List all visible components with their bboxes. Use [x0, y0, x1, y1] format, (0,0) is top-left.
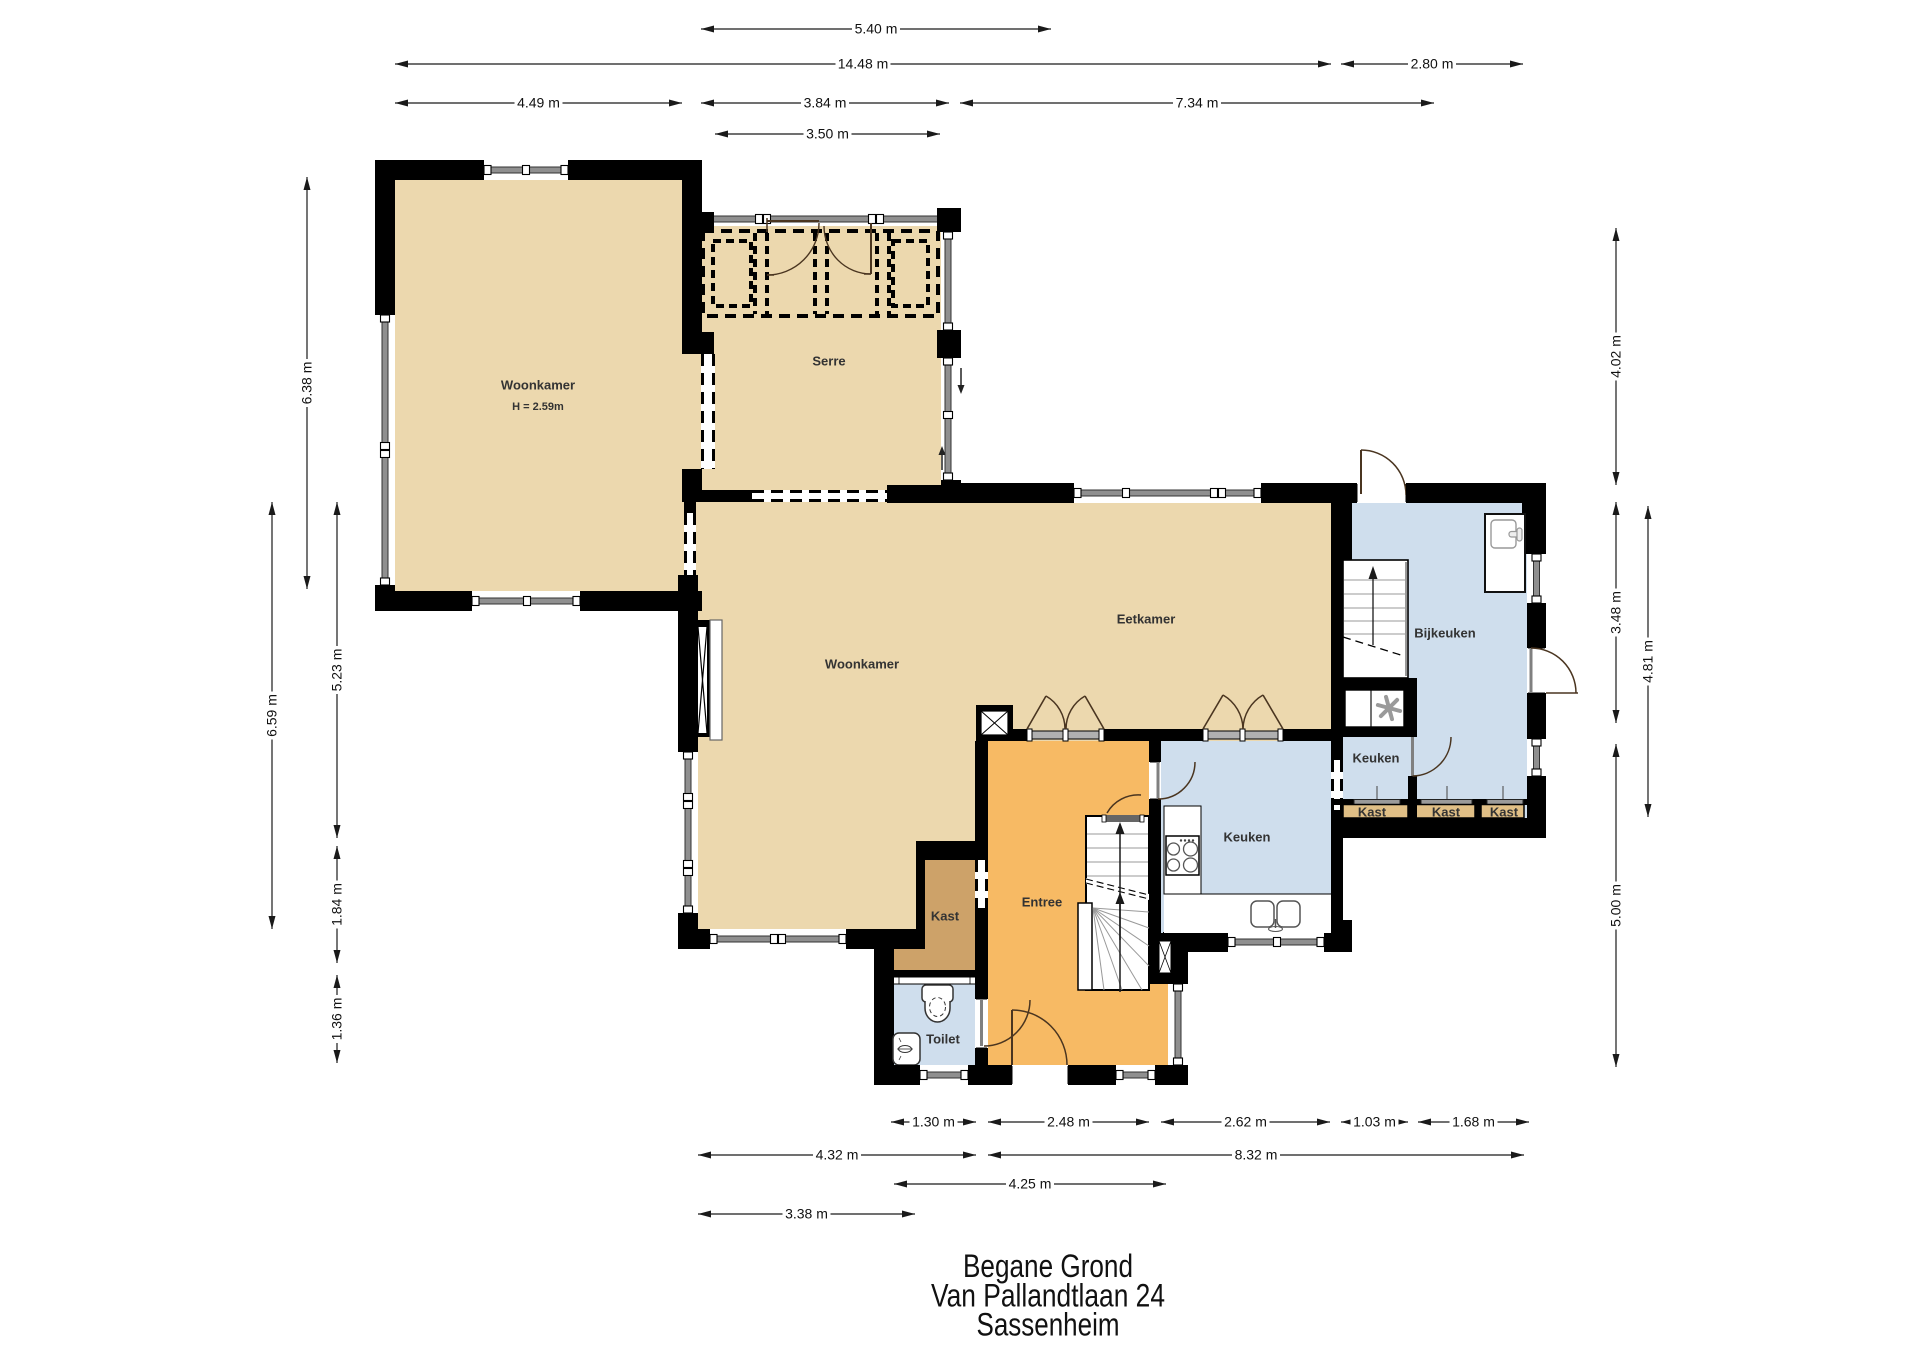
svg-text:4.81 m: 4.81 m	[1640, 640, 1656, 683]
svg-text:1.68 m: 1.68 m	[1452, 1114, 1495, 1130]
svg-text:5.23 m: 5.23 m	[329, 649, 345, 692]
svg-text:2.62 m: 2.62 m	[1224, 1114, 1267, 1130]
svg-text:3.38 m: 3.38 m	[785, 1206, 828, 1222]
svg-text:Keuken: Keuken	[1353, 751, 1400, 766]
svg-text:Sassenheim: Sassenheim	[977, 1307, 1120, 1343]
svg-text:Woonkamer: Woonkamer	[501, 378, 575, 393]
svg-text:Toilet: Toilet	[926, 1032, 960, 1047]
svg-text:2.48 m: 2.48 m	[1047, 1114, 1090, 1130]
svg-text:3.84 m: 3.84 m	[804, 95, 847, 111]
svg-text:Serre: Serre	[812, 354, 845, 369]
svg-text:4.49 m: 4.49 m	[517, 95, 560, 111]
svg-text:14.48 m: 14.48 m	[838, 56, 889, 72]
svg-text:6.59 m: 6.59 m	[264, 694, 280, 737]
svg-text:1.36 m: 1.36 m	[329, 998, 345, 1041]
svg-text:4.25 m: 4.25 m	[1009, 1176, 1052, 1192]
svg-text:Kast: Kast	[931, 909, 960, 924]
svg-text:4.02 m: 4.02 m	[1608, 335, 1624, 378]
svg-text:8.32 m: 8.32 m	[1235, 1147, 1278, 1163]
svg-text:1.84 m: 1.84 m	[329, 883, 345, 926]
svg-text:Kast: Kast	[1358, 805, 1387, 820]
svg-text:H = 2.59m: H = 2.59m	[512, 401, 564, 413]
svg-text:Woonkamer: Woonkamer	[825, 657, 899, 672]
svg-text:3.48 m: 3.48 m	[1608, 591, 1624, 634]
svg-text:Eetkamer: Eetkamer	[1117, 612, 1176, 627]
svg-text:1.30 m: 1.30 m	[912, 1114, 955, 1130]
svg-text:Entree: Entree	[1022, 895, 1062, 910]
svg-text:1.03 m: 1.03 m	[1353, 1114, 1396, 1130]
svg-text:6.38 m: 6.38 m	[299, 362, 315, 405]
svg-text:4.32 m: 4.32 m	[816, 1147, 859, 1163]
svg-text:7.34 m: 7.34 m	[1176, 95, 1219, 111]
svg-text:Kast: Kast	[1432, 805, 1461, 820]
svg-text:Kast: Kast	[1490, 805, 1519, 820]
svg-text:Bijkeuken: Bijkeuken	[1414, 626, 1475, 641]
svg-text:2.80 m: 2.80 m	[1411, 56, 1454, 72]
svg-text:Keuken: Keuken	[1224, 830, 1271, 845]
svg-text:3.50 m: 3.50 m	[806, 126, 849, 142]
svg-text:5.00 m: 5.00 m	[1608, 884, 1624, 927]
svg-text:5.40 m: 5.40 m	[855, 21, 898, 37]
